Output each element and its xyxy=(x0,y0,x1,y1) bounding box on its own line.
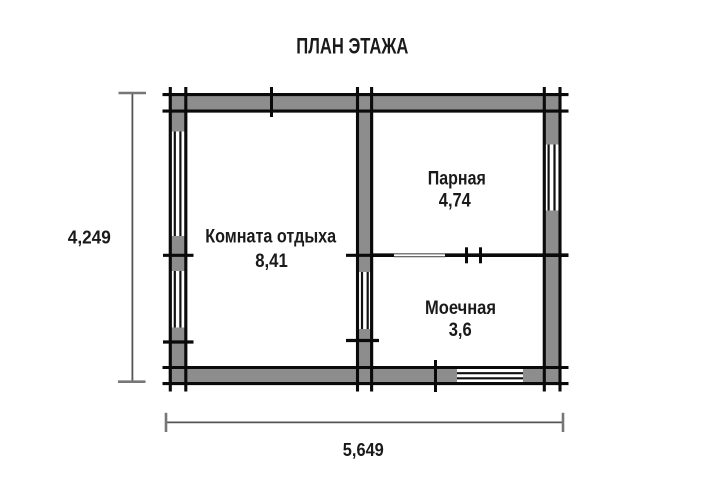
svg-text:4,74: 4,74 xyxy=(439,191,471,212)
svg-text:4,249: 4,249 xyxy=(68,227,111,247)
svg-text:Парная: Парная xyxy=(428,168,486,189)
svg-text:3,6: 3,6 xyxy=(449,320,472,341)
svg-text:8,41: 8,41 xyxy=(255,251,288,272)
svg-text:Комната отдыха: Комната отдыха xyxy=(205,227,336,248)
svg-text:ПЛАН ЭТАЖА: ПЛАН ЭТАЖА xyxy=(296,34,408,59)
svg-text:5,649: 5,649 xyxy=(343,440,384,460)
svg-text:Моечная: Моечная xyxy=(425,298,496,319)
